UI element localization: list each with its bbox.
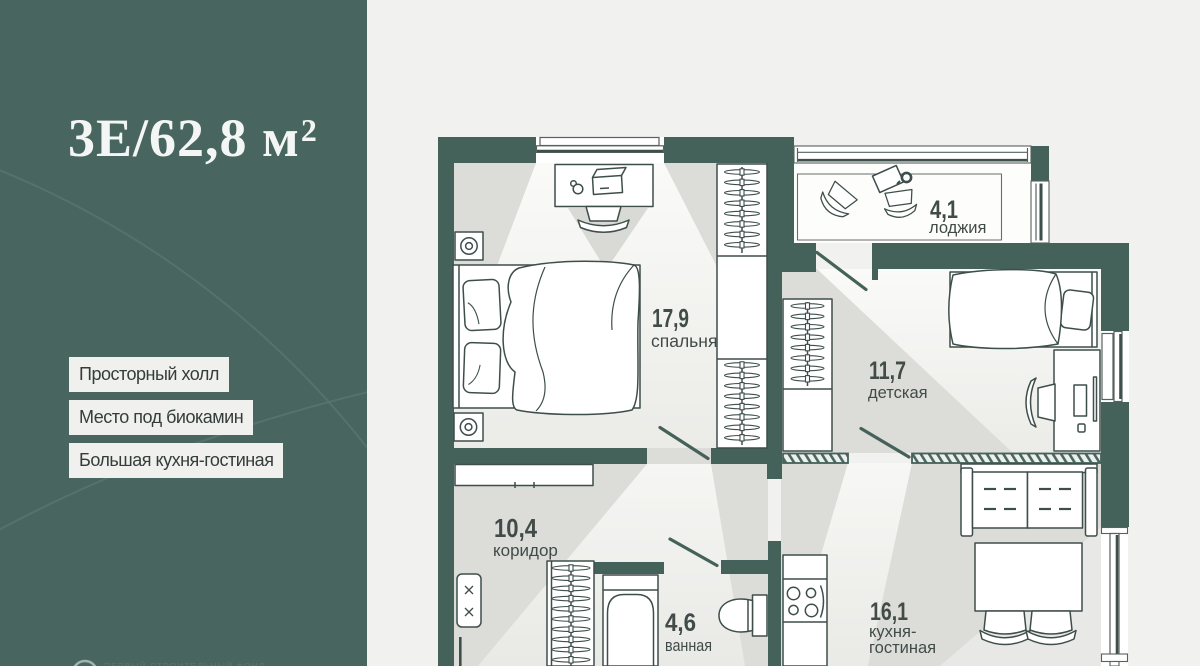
svg-text:17,9: 17,9 [652,303,689,333]
svg-text:16,1: 16,1 [870,598,908,626]
svg-text:детская: детская [868,384,928,402]
svg-text:гостиная: гостиная [869,639,936,657]
svg-text:11,7: 11,7 [869,357,906,385]
svg-text:спальня: спальня [651,331,717,351]
svg-text:ванная: ванная [665,637,712,655]
svg-text:4,6: 4,6 [665,609,696,637]
svg-text:лоджия: лоджия [929,219,986,237]
svg-text:коридор: коридор [493,541,558,560]
svg-text:10,4: 10,4 [494,513,537,543]
